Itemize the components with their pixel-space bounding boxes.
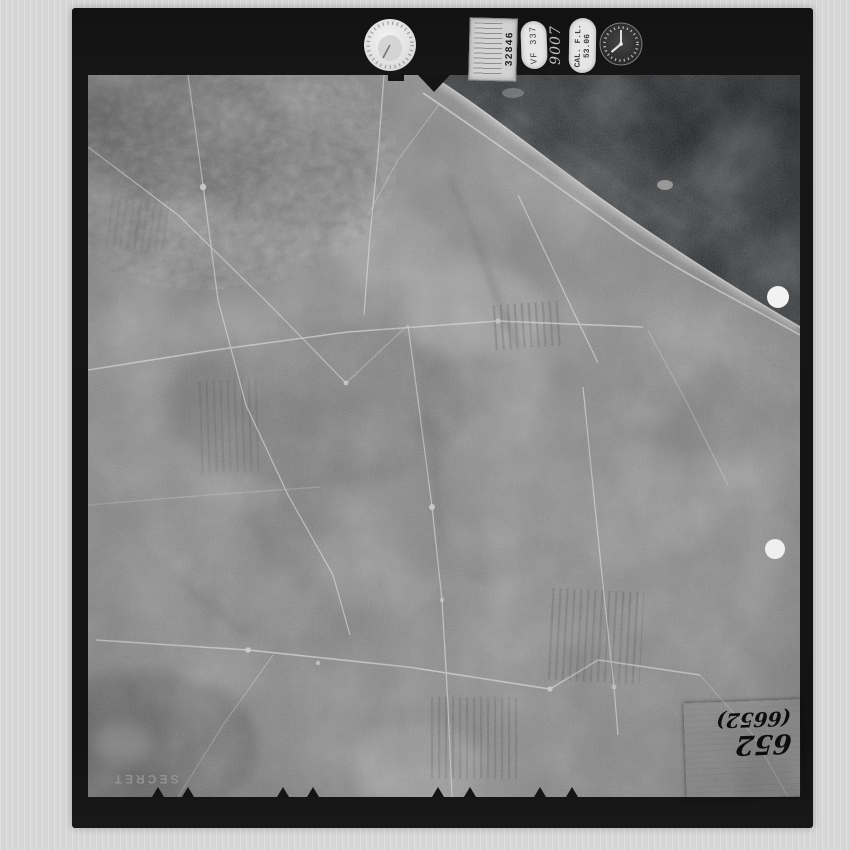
data-block-fine-print	[473, 23, 502, 77]
calibration-text: CAL. F.L. 53.06	[573, 24, 592, 68]
aerial-photo-image	[88, 75, 800, 797]
data-block-number: 32846	[505, 31, 517, 66]
altimeter-dial-icon	[363, 18, 417, 72]
frame-number-label-patch: 652 (6652)	[683, 699, 803, 800]
aerial-photo	[88, 75, 800, 797]
handwritten-code-text: 9007	[548, 25, 564, 65]
frame-number: 652	[690, 729, 793, 759]
calibration-line2: 53.06	[582, 24, 592, 67]
frame-number-writing: 652 (6652)	[683, 699, 803, 800]
security-classification-label: SECRET	[100, 766, 190, 786]
scanned-film-page: 32846 VF 337 9007 CAL. F.L. 53.06	[0, 0, 850, 850]
clock-stamp	[599, 22, 643, 66]
frame-number-paren: (6652)	[689, 707, 791, 733]
oval-stamp-calibration: CAL. F.L. 53.06	[569, 18, 597, 73]
clock-icon	[599, 22, 643, 66]
data-block-stamp: 32846	[468, 17, 518, 81]
calibration-line1: CAL. F.L.	[573, 24, 583, 67]
oval-stamp-vf-text: VF 337	[528, 26, 539, 65]
altimeter-dial-stamp	[363, 18, 417, 72]
film-frame-border: 32846 VF 337 9007 CAL. F.L. 53.06	[72, 8, 813, 828]
vignette	[88, 75, 800, 797]
handwritten-code: 9007	[544, 22, 568, 68]
